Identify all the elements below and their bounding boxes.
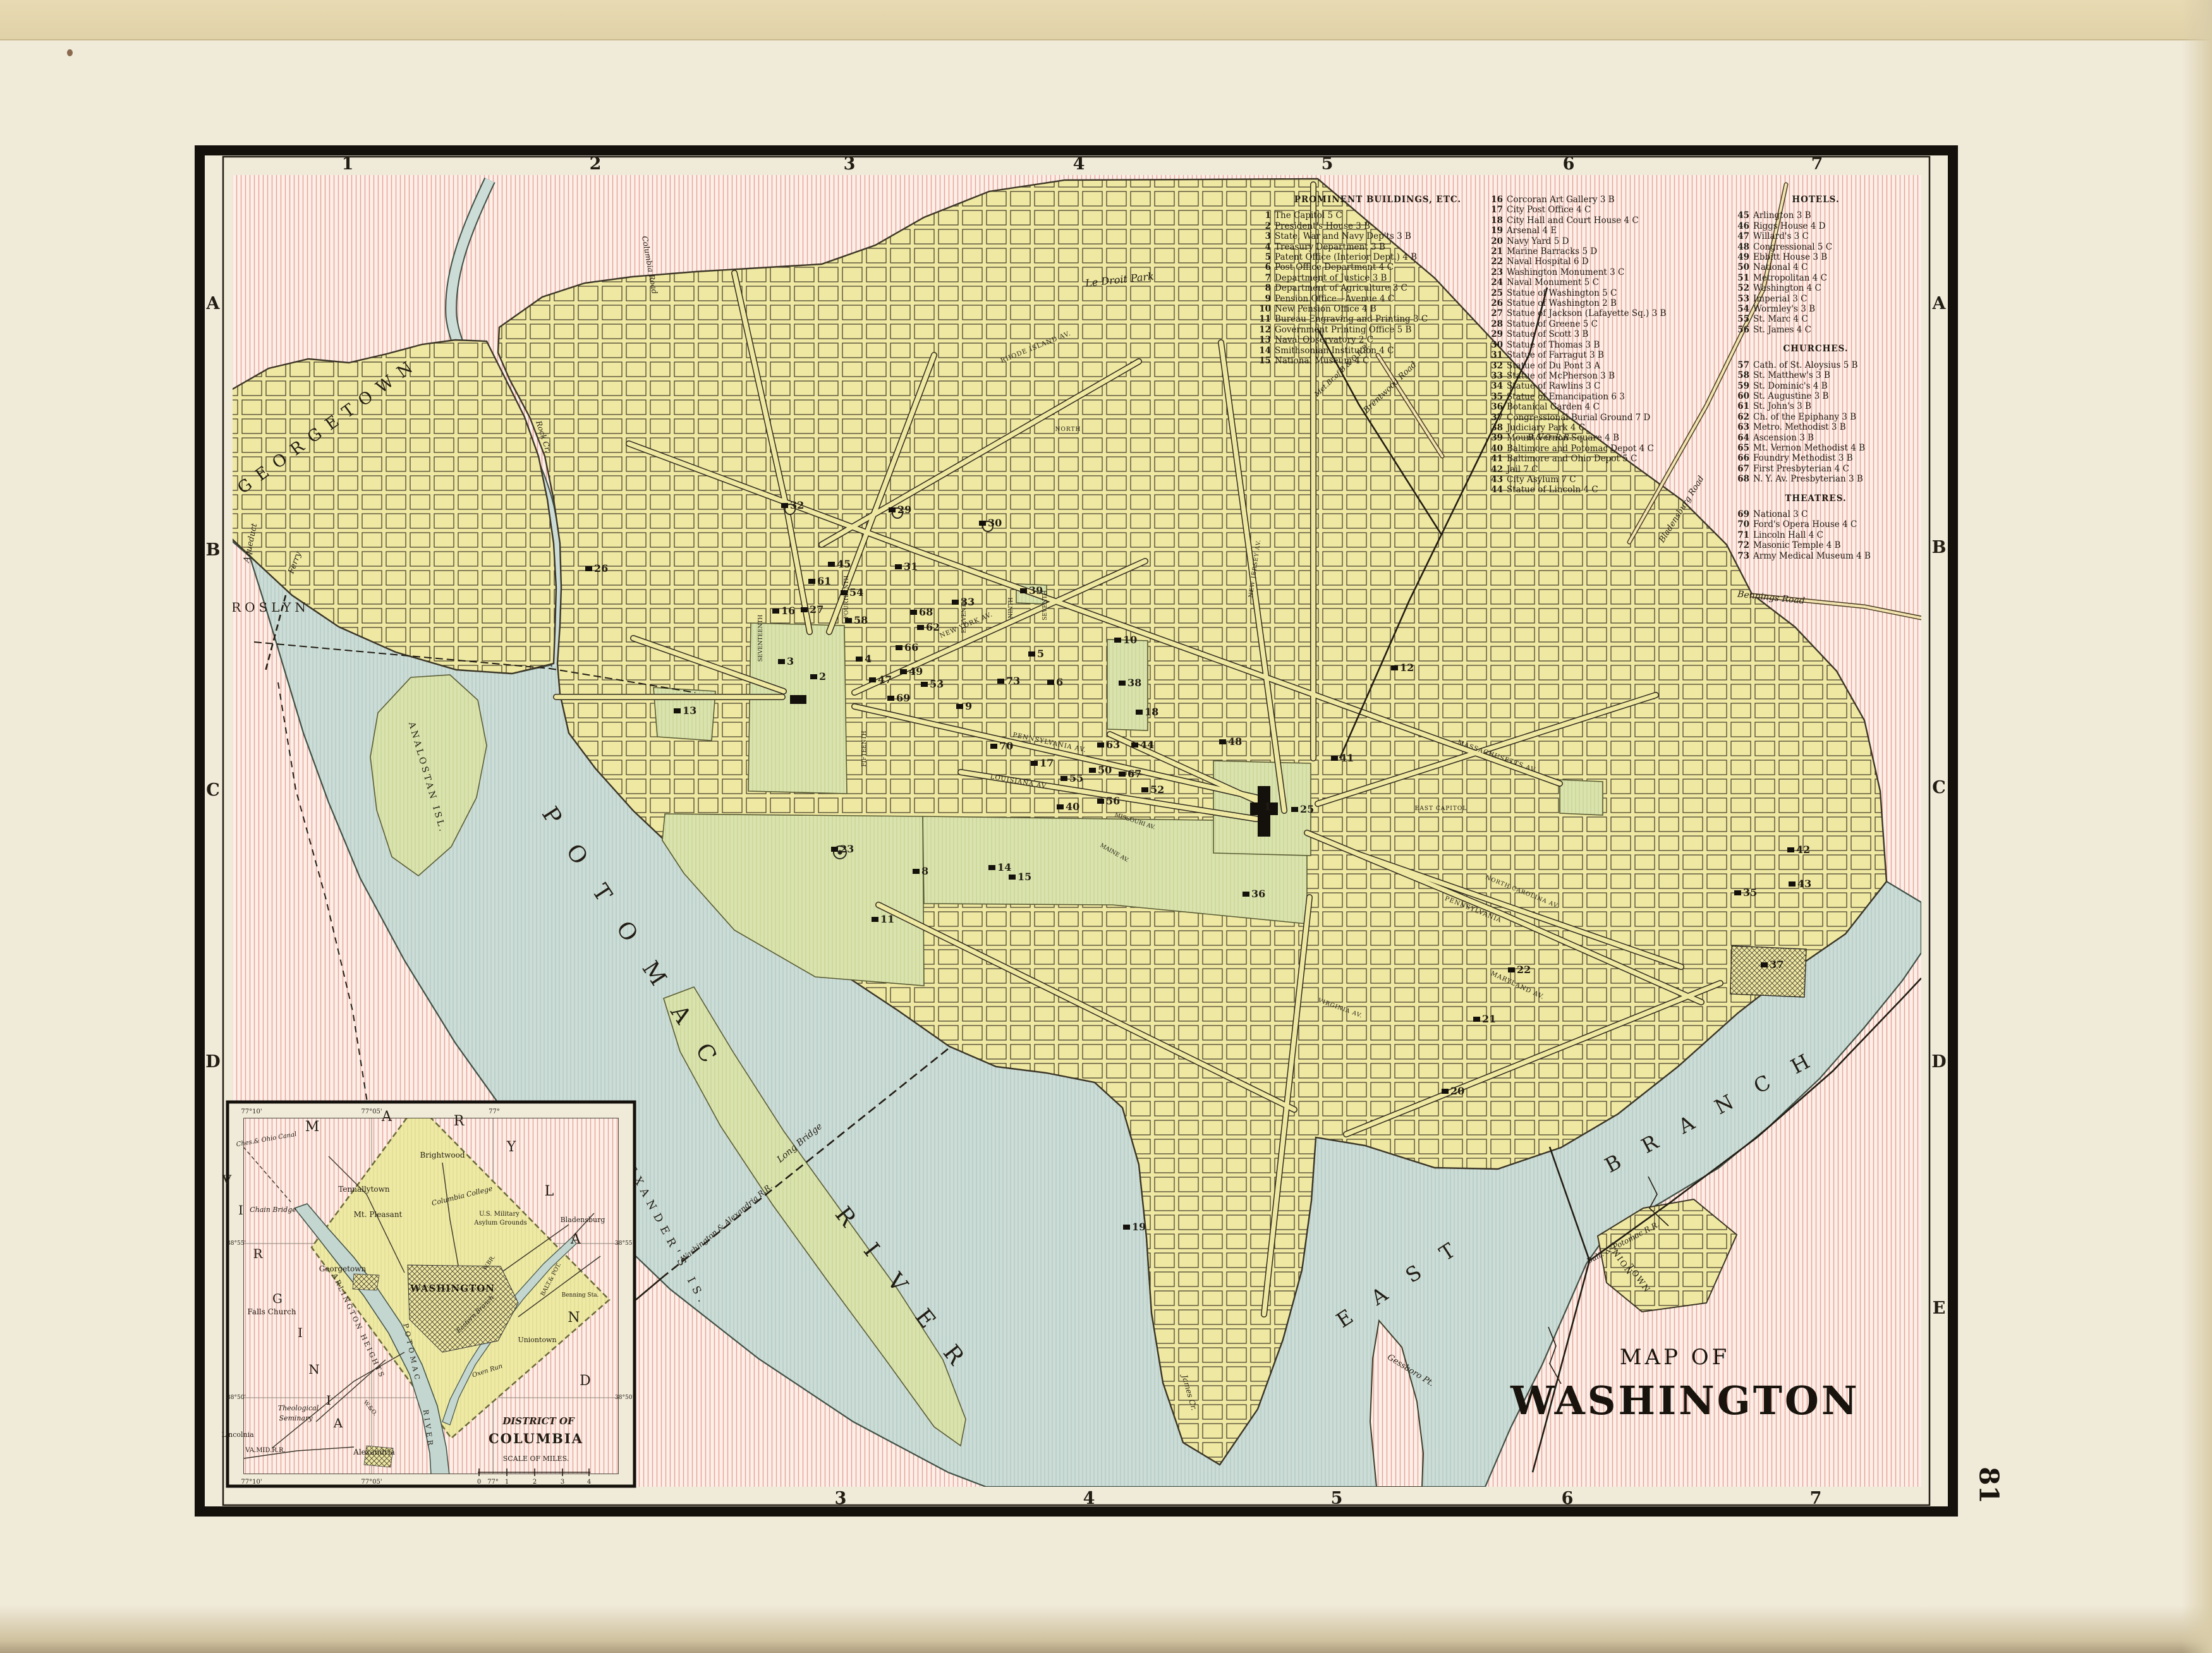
map-label: SEVENTH (1042, 590, 1048, 621)
map-label: Seminary (279, 1414, 313, 1422)
legend-item: 25Statue of Washington 5 C (1486, 288, 1727, 298)
map-label: A (333, 1415, 343, 1431)
legend-item-number: 14 (1255, 346, 1271, 356)
legend-item-label: Statue of Rawlins 3 C (1507, 381, 1600, 391)
legend-item-number: 47 (1733, 231, 1749, 241)
building-footprint (856, 657, 863, 662)
map-label: 77°10' (241, 1479, 262, 1486)
landmark-number: 69 (896, 692, 910, 704)
legend-item: 7Department of Justice 3 B (1255, 273, 1501, 283)
legend-item: 26Statue of Washington 2 B (1486, 298, 1727, 308)
legend-item-number: 32 (1486, 361, 1503, 371)
legend-item: 57Cath. of St. Aloysius 5 B (1733, 360, 1899, 370)
building-footprint (831, 847, 838, 852)
building-footprint (1131, 742, 1138, 748)
legend-item-label: Washington 4 C (1753, 283, 1821, 293)
legend-item-label: Department of Agriculture 3 C (1275, 283, 1407, 293)
landmark-number: 6 (1056, 676, 1063, 688)
grid-index-7: 7 (1811, 154, 1823, 174)
legend-item-label: Washington Monument 3 C (1507, 267, 1624, 277)
legend-item-label: Wormley's 3 B (1753, 304, 1815, 314)
landmark-number: 42 (1796, 844, 1810, 856)
legend-item-number: 19 (1486, 226, 1503, 236)
map-label: I (238, 1202, 243, 1218)
map-label: COLUMBIA (489, 1431, 583, 1446)
legend-item-label: Post Office Department 4 C (1275, 262, 1394, 272)
map-label: Mt. Pleasant (354, 1210, 403, 1219)
building-footprint (896, 645, 902, 650)
legend-item-label: Ch. of the Epiphany 3 B (1753, 412, 1856, 422)
legend-item-number: 29 (1486, 329, 1503, 339)
legend-item: 46Riggs House 4 D (1733, 221, 1899, 231)
legend-title-churches: CHURCHES. (1733, 344, 1899, 354)
map-label: Uniontown (518, 1336, 556, 1344)
building-footprint (1291, 807, 1298, 812)
legend-item-number: 70 (1733, 519, 1749, 530)
legend-item-number: 9 (1255, 294, 1271, 304)
building-footprint (988, 865, 995, 870)
legend-item-number: 18 (1486, 215, 1503, 226)
legend-item-number: 54 (1733, 304, 1749, 314)
map-label: 2 (533, 1479, 537, 1486)
legend-item-label: Statue of Greene 5 C (1507, 319, 1598, 329)
legend-item-label: Judiciary Park 4 C (1507, 423, 1585, 433)
building-footprint (872, 917, 878, 922)
map-label: Chain Bridge (250, 1206, 296, 1214)
legend-item: 34Statue of Rawlins 3 C (1486, 381, 1727, 391)
building-footprint (1089, 768, 1096, 773)
map-label: 0 (477, 1479, 481, 1486)
grid-index-4: 4 (1073, 154, 1085, 174)
legend-item-label: State, War and Navy Dep'ts 3 B (1275, 231, 1411, 241)
map-label: ELEVENTH (961, 599, 968, 633)
legend-item-number: 34 (1486, 381, 1503, 391)
grid-index-4: 4 (1083, 1489, 1095, 1508)
legend-item: 4Treasury Department 3 B (1255, 242, 1501, 252)
legend-item: 2President's House 3 B (1255, 221, 1501, 231)
legend-item-label: Riggs House 4 D (1753, 221, 1826, 231)
legend-prominent-buildings-col1: PROMINENT BUILDINGS, ETC.1The Capitol 5 … (1255, 195, 1501, 366)
legend-item-label: Ford's Opera House 4 C (1753, 519, 1857, 530)
landmark-number: 5 (1037, 648, 1044, 660)
building-footprint (1020, 588, 1027, 593)
legend-item-number: 33 (1486, 371, 1503, 381)
legend-item: 68N. Y. Av. Presbyterian 3 B (1733, 474, 1899, 484)
district-of-columbia-inset: MARYLANDVIRGINIABrightwoodTennallytownMt… (221, 1102, 635, 1486)
map-label: L (545, 1184, 554, 1199)
legend-item-number: 24 (1486, 277, 1503, 288)
legend-item: 73Army Medical Museum 4 B (1733, 551, 1899, 561)
map-label: Y (506, 1139, 516, 1155)
map-title-line1: MAP OF (1510, 1345, 1839, 1370)
building-footprint (801, 607, 808, 612)
landmark-number: 47 (878, 674, 892, 686)
legend-item-number: 39 (1486, 433, 1503, 443)
legend-item-number: 8 (1255, 283, 1271, 293)
legend-item-number: 55 (1733, 314, 1749, 324)
landmark-number: 61 (817, 575, 831, 587)
building-footprint (1136, 710, 1143, 715)
legend-item-number: 35 (1486, 392, 1503, 402)
legend-item: 49Ebbitt House 3 B (1733, 252, 1899, 262)
legend-item: 43City Asylum 7 C (1486, 475, 1727, 485)
legend-item-label: Botanical Garden 4 C (1507, 402, 1600, 412)
landmark-number: 58 (854, 614, 868, 626)
map-label: Benning Sta. (562, 1292, 599, 1299)
legend-item-number: 31 (1486, 350, 1503, 360)
map-title: MAP OF WASHINGTON (1510, 1345, 1839, 1424)
legend-item: 52Washington 4 C (1733, 283, 1899, 293)
legend-item-number: 10 (1255, 304, 1271, 314)
landmark-number: 29 (897, 504, 911, 516)
legend-item: 15National Museum 4 C (1255, 356, 1501, 366)
grid-index-6: 6 (1562, 1489, 1574, 1508)
building-footprint (828, 562, 835, 567)
landmark-number: 2 (819, 670, 826, 682)
legend-item: 50National 4 C (1733, 262, 1899, 272)
landmark-number: 37 (1770, 959, 1784, 971)
legend-item: 28Statue of Greene 5 C (1486, 319, 1727, 329)
legend-item-number: 4 (1255, 242, 1271, 252)
map-label: G (272, 1291, 283, 1306)
landmark-number: 41 (1340, 752, 1354, 764)
landmark-number: 39 (1029, 584, 1043, 596)
landmark-number: 54 (849, 586, 863, 598)
legend-item-label: Willard's 3 C (1753, 231, 1809, 241)
page-number: 81 (1974, 1467, 2005, 1503)
legend-item-label: Statue of McPherson 3 B (1507, 371, 1615, 381)
legend-item: 40Baltimore and Potomac Depot 4 C (1486, 444, 1727, 454)
map-label: Asylum Grounds (473, 1220, 527, 1226)
grid-index-3: 3 (844, 154, 856, 174)
building-footprint (952, 600, 959, 605)
legend-item: 54Wormley's 3 B (1733, 304, 1899, 314)
landmark-number: 12 (1400, 662, 1414, 674)
legend-item-number: 59 (1733, 381, 1749, 391)
map-label: NINTH (1008, 597, 1014, 618)
legend-item-number: 40 (1486, 444, 1503, 454)
map-label: 38°55' (615, 1240, 634, 1247)
legend-item: 30Statue of Thomas 3 B (1486, 340, 1727, 350)
grid-index-3: 3 (835, 1489, 847, 1508)
landmark-number: 22 (1517, 964, 1531, 976)
legend-item: 55St. Marc 4 C (1733, 314, 1899, 324)
landmark-number: 20 (1450, 1085, 1464, 1097)
legend-item-number: 58 (1733, 370, 1749, 380)
landmark-number: 3 (787, 655, 794, 667)
legend-item-label: Foundry Methodist 3 B (1753, 453, 1853, 463)
building-footprint (1097, 742, 1104, 748)
legend-title-hotels: HOTELS. (1733, 195, 1899, 205)
legend-item-label: Jail 7 C (1507, 464, 1538, 475)
map-title-line2: WASHINGTON (1510, 1377, 1839, 1424)
building-footprint (1787, 847, 1794, 852)
legend-item: 36Botanical Garden 4 C (1486, 402, 1727, 412)
legend-item-label: Mount Vernon Square 4 B (1507, 433, 1619, 443)
legend-item: 27Statue of Jackson (Lafayette Sq.) 3 B (1486, 308, 1727, 318)
legend-item-label: Baltimore and Ohio Depot 5 C (1507, 454, 1637, 464)
legend-hotels-churches-theatres: HOTELS.45Arlington 3 B46Riggs House 4 D4… (1733, 195, 1899, 561)
legend-item-number: 46 (1733, 221, 1749, 231)
legend-item-label: National Museum 4 C (1275, 356, 1370, 366)
legend-item-number: 45 (1733, 210, 1749, 221)
legend-item-number: 23 (1486, 267, 1503, 277)
legend-item: 31Statue of Farragut 3 B (1486, 350, 1727, 360)
building-footprint (869, 677, 876, 682)
legend-item-label: Metropolitan 4 C (1753, 273, 1827, 283)
legend-item-number: 43 (1486, 475, 1503, 485)
legend-item: 63Metro. Methodist 3 B (1733, 422, 1899, 432)
inset-georgetown (353, 1274, 379, 1290)
landmark-number: 27 (810, 603, 823, 615)
landmark-number: 8 (921, 865, 928, 877)
landmark-number: 68 (919, 606, 933, 618)
building-footprint (1060, 776, 1067, 781)
legend-item: 65Mt. Vernon Methodist 4 B (1733, 443, 1899, 453)
legend-item-number: 38 (1486, 423, 1503, 433)
map-label: A (570, 1232, 581, 1247)
building-footprint (1114, 638, 1121, 643)
building-footprint (1028, 651, 1035, 657)
building-footprint (1057, 804, 1064, 809)
landmark-number: 18 (1145, 706, 1158, 718)
grid-index-A: A (206, 294, 221, 313)
legend-item: 51Metropolitan 4 C (1733, 273, 1899, 283)
building-footprint (887, 696, 894, 701)
building-footprint (1255, 804, 1262, 809)
legend-item: 8Department of Agriculture 3 C (1255, 283, 1501, 293)
legend-item-label: Arlington 3 B (1753, 210, 1811, 221)
legend-item: 58St. Matthew's 3 B (1733, 370, 1899, 380)
legend-item: 69National 3 C (1733, 509, 1899, 519)
scanned-atlas-page: { "page": {"number": "81"}, "map": {"tit… (0, 0, 2212, 1653)
legend-item: 66Foundry Methodist 3 B (1733, 453, 1899, 463)
landmark-number: 52 (1150, 784, 1164, 796)
building-footprint (1331, 756, 1338, 761)
legend-item-number: 66 (1733, 453, 1749, 463)
legend-item: 61St. John's 3 B (1733, 401, 1899, 411)
legend-item-label: Congressional Burial Ground 7 D (1507, 413, 1650, 423)
legend-item-label: Naval Monument 5 C (1507, 277, 1599, 288)
map-label: Bladensburg (561, 1216, 605, 1224)
legend-item-number: 30 (1486, 340, 1503, 350)
legend-item-number: 41 (1486, 454, 1503, 464)
building-footprint (1119, 772, 1126, 777)
map-label: N (308, 1362, 320, 1377)
landmark-number: 32 (790, 499, 804, 511)
building-footprint (1009, 875, 1016, 880)
legend-item: 14Smithsonian Institution 4 C (1255, 346, 1501, 356)
grid-index-C: C (206, 780, 220, 800)
legend-item: 12Government Printing Office 5 B (1255, 325, 1501, 335)
landmark-number: 26 (594, 562, 608, 574)
legend-item-label: Cath. of St. Aloysius 5 B (1753, 360, 1858, 370)
landmark-number: 56 (1106, 795, 1120, 807)
building-footprint (917, 625, 924, 630)
legend-item-number: 68 (1733, 474, 1749, 484)
legend-item: 39Mount Vernon Square 4 B (1486, 433, 1727, 443)
legend-item: 70Ford's Opera House 4 C (1733, 519, 1899, 530)
building-footprint (1761, 962, 1768, 967)
map-label: N (568, 1310, 580, 1326)
legend-title-theatres: THEATRES. (1733, 493, 1899, 504)
grid-index-7: 7 (1810, 1489, 1822, 1508)
map-label: I (326, 1393, 331, 1408)
legend-item-label: Statue of Washington 5 C (1507, 288, 1617, 298)
legend-item-label: National 4 C (1753, 262, 1808, 272)
building-footprint (889, 507, 896, 512)
landmark-number: 19 (1132, 1221, 1146, 1233)
legend-item: 35Statue of Emancipation 6 3 (1486, 392, 1727, 402)
landmark-number: 14 (997, 861, 1011, 873)
landmark-number: 23 (840, 843, 854, 855)
map-label: 38°50' (227, 1395, 246, 1401)
legend-item-number: 22 (1486, 257, 1503, 267)
legend-item-label: Treasury Department 3 B (1275, 242, 1385, 252)
grid-index-A: A (1932, 294, 1947, 313)
legend-item-number: 6 (1255, 262, 1271, 272)
legend-item-number: 42 (1486, 464, 1503, 475)
building-footprint (1734, 890, 1741, 895)
legend-item: 29Statue of Scott 3 B (1486, 329, 1727, 339)
building-footprint (1119, 681, 1126, 686)
building-footprint (808, 579, 815, 584)
grid-index-E: E (1933, 1299, 1946, 1318)
landmark-number: 1 (1264, 801, 1271, 813)
legend-item: 5Patent Office (Interior Dept.) 4 B (1255, 252, 1501, 262)
legend-prominent-buildings-col2: 16Corcoran Art Gallery 3 B17City Post Of… (1486, 195, 1727, 495)
map-label: Georgetown (319, 1264, 367, 1273)
map-label: 77° (489, 1108, 500, 1115)
building-footprint (1243, 892, 1249, 897)
grid-index-D: D (205, 1052, 220, 1072)
legend-item-number: 11 (1255, 314, 1271, 324)
building-footprint (900, 669, 907, 674)
map-label: SCALE OF MILES. (503, 1455, 569, 1463)
legend-item-label: Department of Justice 3 B (1275, 273, 1387, 283)
map-label: ROSLYN (231, 600, 310, 615)
legend-item-label: Mt. Vernon Methodist 4 B (1753, 443, 1865, 453)
legend-item-label: Bureau Engraving and Printing 3 C (1275, 314, 1428, 324)
legend-item-label: Naval Observatory 2 C (1275, 335, 1373, 345)
map-label: Brightwood (420, 1151, 465, 1160)
legend-item: 22Naval Hospital 6 D (1486, 257, 1727, 267)
landmark-number: 53 (930, 678, 944, 690)
building-footprint (913, 869, 920, 874)
building-footprint (772, 609, 779, 614)
legend-item-label: Pension Office—Avenue 4 C (1275, 294, 1394, 304)
map-label: 77°10' (241, 1108, 262, 1115)
building-footprint (585, 566, 592, 571)
map-label: FOURTEENTH (844, 576, 850, 619)
landmark-number: 36 (1251, 888, 1265, 900)
legend-item-number: 1 (1255, 210, 1271, 221)
legend-item-label: Imperial 3 C (1753, 294, 1807, 304)
legend-item-label: Ascension 3 B (1753, 433, 1814, 443)
landmark-number: 16 (781, 605, 795, 617)
grid-index-D: D (1931, 1052, 1946, 1072)
legend-item-label: St. Augustine 3 B (1753, 391, 1828, 401)
map-label: EAST CAPITOL (1415, 806, 1467, 812)
legend-item-number: 2 (1255, 221, 1271, 231)
landmark-number: 30 (988, 517, 1002, 529)
map-label: 77°05' (361, 1108, 382, 1115)
map-label: R (454, 1113, 465, 1129)
legend-item: 41Baltimore and Ohio Depot 5 C (1486, 454, 1727, 464)
map-label: Lincolnia (221, 1431, 254, 1439)
legend-item-number: 60 (1733, 391, 1749, 401)
map-label: WASHINGTON (410, 1283, 495, 1294)
legend-item-label: Navy Yard 5 D (1507, 236, 1569, 246)
legend-item-number: 17 (1486, 205, 1503, 215)
building-footprint (1123, 1225, 1130, 1230)
landmark-number: 67 (1127, 768, 1141, 780)
legend-item-number: 13 (1255, 335, 1271, 345)
legend-item-number: 12 (1255, 325, 1271, 335)
landmark-number: 40 (1066, 801, 1079, 813)
building-footprint (979, 521, 986, 526)
legend-item-number: 48 (1733, 242, 1749, 252)
legend-item-label: Corcoran Art Gallery 3 B (1507, 195, 1615, 205)
legend-item-label: Arsenal 4 E (1507, 226, 1557, 236)
landmark-number: 4 (865, 653, 872, 665)
legend-item: 32Statue of Du Pont 3 A (1486, 361, 1727, 371)
map-label: A (381, 1109, 392, 1125)
legend-item-number: 28 (1486, 319, 1503, 329)
grid-index-6: 6 (1563, 154, 1575, 174)
grid-index-5: 5 (1331, 1489, 1343, 1508)
building-footprint (781, 503, 788, 508)
legend-item-label: St. Dominic's 4 B (1753, 381, 1828, 391)
landmark-number: 48 (1228, 736, 1242, 748)
building-footprint (910, 610, 917, 615)
building-footprint (921, 682, 928, 687)
legend-item: 9Pension Office—Avenue 4 C (1255, 294, 1501, 304)
legend-item-number: 36 (1486, 402, 1503, 412)
legend-item: 60St. Augustine 3 B (1733, 391, 1899, 401)
building-footprint (1047, 680, 1054, 685)
building-footprint (1031, 761, 1038, 766)
legend-item-number: 20 (1486, 236, 1503, 246)
legend-item: 59St. Dominic's 4 B (1733, 381, 1899, 391)
map-label: M (305, 1119, 320, 1135)
legend-item: 18City Hall and Court House 4 C (1486, 215, 1727, 226)
building-footprint (810, 674, 817, 679)
legend-item-label: Army Medical Museum 4 B (1753, 551, 1871, 561)
legend-item-label: Congressional 5 C (1753, 242, 1832, 252)
legend-item-number: 50 (1733, 262, 1749, 272)
legend-item-number: 51 (1733, 273, 1749, 283)
legend-item: 20Navy Yard 5 D (1486, 236, 1727, 246)
legend-item-label: City Hall and Court House 4 C (1507, 215, 1639, 226)
legend-item: 71Lincoln Hall 4 C (1733, 530, 1899, 540)
legend-item-label: Statue of Jackson (Lafayette Sq.) 3 B (1507, 308, 1666, 318)
map-label: I (298, 1325, 303, 1340)
map-label: NORTH (1055, 427, 1081, 433)
legend-item-label: Government Printing Office 5 B (1275, 325, 1411, 335)
legend-item: 6Post Office Department 4 C (1255, 262, 1501, 272)
landmark-number: 35 (1743, 887, 1757, 899)
legend-item-number: 72 (1733, 540, 1749, 550)
building-footprint (997, 679, 1004, 684)
landmark-number: 25 (1300, 803, 1314, 815)
landmark-number: 17 (1040, 757, 1054, 769)
lincoln-square (1560, 780, 1603, 815)
legend-item-number: 49 (1733, 252, 1749, 262)
legend-item-number: 44 (1486, 485, 1503, 495)
landmark-number: 70 (999, 740, 1013, 752)
legend-item-number: 65 (1733, 443, 1749, 453)
